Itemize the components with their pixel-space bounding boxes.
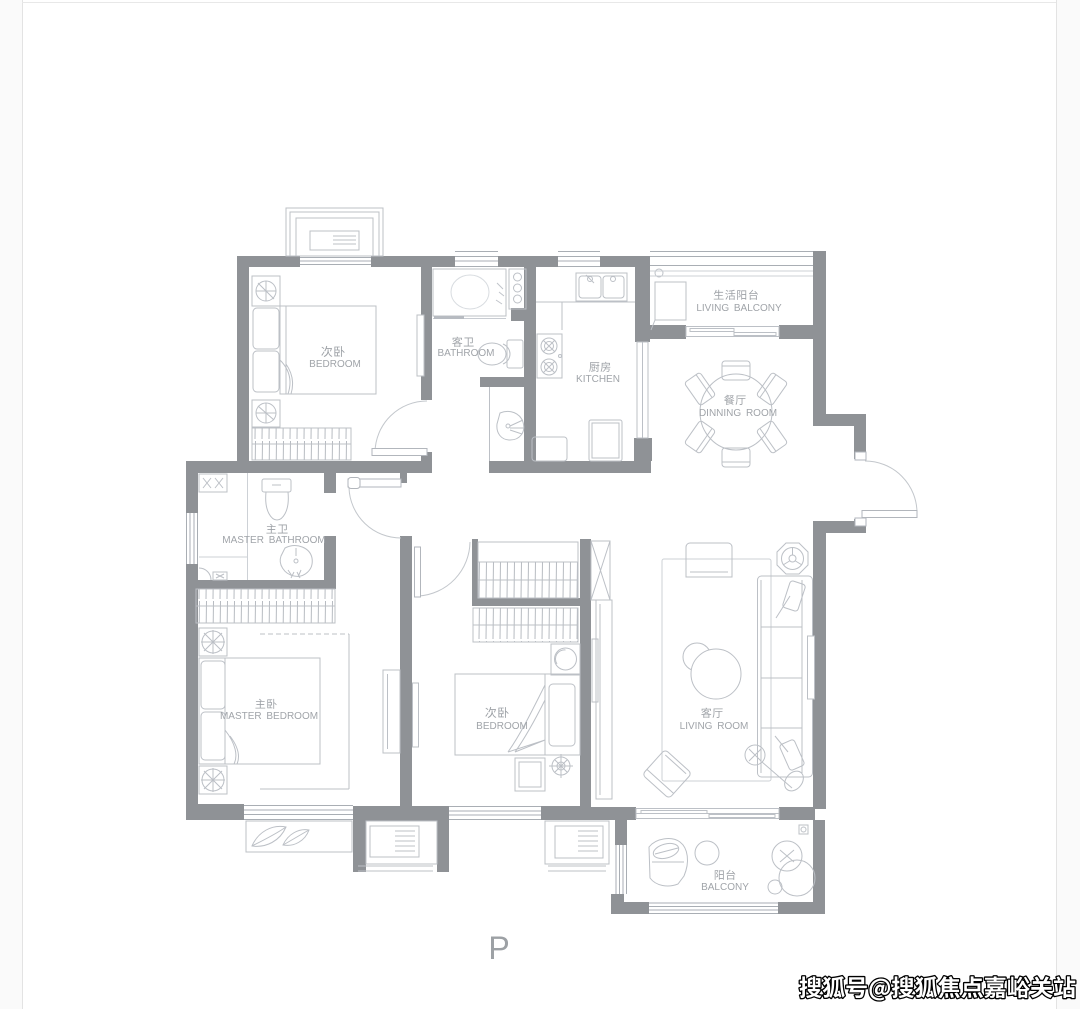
svg-text:LIVING BALCONY: LIVING BALCONY	[696, 303, 782, 314]
svg-text:BEDROOM: BEDROOM	[309, 359, 361, 370]
svg-text:BEDROOM: BEDROOM	[476, 721, 528, 732]
svg-text:MASTER BEDROOM: MASTER BEDROOM	[220, 711, 318, 722]
svg-text:BALCONY: BALCONY	[701, 882, 749, 893]
svg-text:MASTER BATHROOM: MASTER BATHROOM	[222, 535, 325, 546]
svg-text:BATHROOM: BATHROOM	[437, 348, 494, 359]
svg-text:LIVING ROOM: LIVING ROOM	[680, 721, 749, 732]
svg-text:KITCHEN: KITCHEN	[576, 374, 620, 385]
svg-text:P: P	[488, 930, 509, 966]
svg-text:DINNING ROOM: DINNING ROOM	[699, 408, 777, 419]
